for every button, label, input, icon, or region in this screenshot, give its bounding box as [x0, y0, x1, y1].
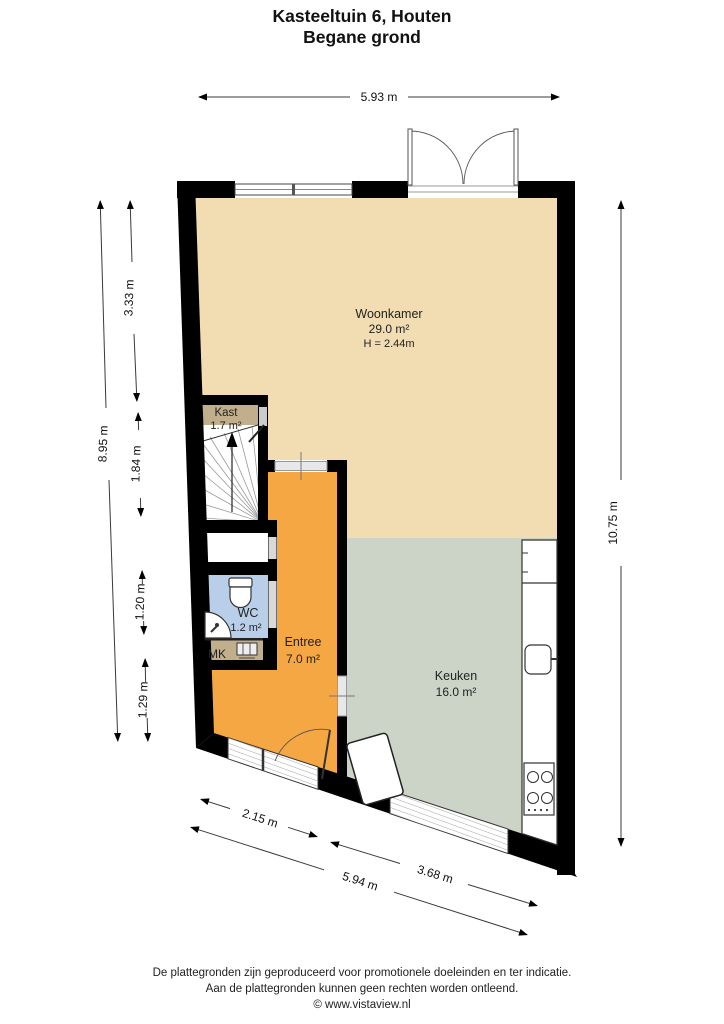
- dim-top: 5.93 m: [361, 90, 398, 104]
- french-door-left-leaf: [408, 129, 412, 185]
- mk-label: MK: [208, 647, 226, 661]
- french-door-right-arc: [464, 131, 517, 184]
- top-window: [235, 184, 352, 195]
- dim-left-seg1: 3.33 m: [121, 279, 136, 316]
- dim-left-seg2: 1.84 m: [128, 445, 143, 482]
- woonkamer-height: H = 2.44m: [363, 338, 414, 350]
- kast-label: Kast: [214, 407, 238, 419]
- toilet-icon: [229, 578, 252, 608]
- entree-area: 7.0 m²: [286, 652, 320, 666]
- niche-door: [269, 537, 277, 559]
- keuken-area: 16.0 m²: [436, 685, 477, 699]
- dim-bottom-total: 5.94 m: [341, 869, 380, 894]
- wc-label: WC: [238, 606, 259, 620]
- woonkamer-label: Woonkamer: [355, 307, 422, 321]
- stove-icon: [524, 763, 554, 815]
- understairs-niche: [203, 533, 268, 562]
- dim-left-seg3: 1.20 m: [132, 583, 147, 620]
- dim-left-total: 8.95 m: [95, 425, 110, 462]
- dim-bottom-entree: 2.15 m: [241, 806, 280, 831]
- page-title: Kasteeltuin 6, Houten: [273, 6, 452, 26]
- footer-disclaimer-2: Aan de plattegronden kunnen geen rechten…: [206, 983, 519, 995]
- dim-left-seg4: 1.29 m: [135, 681, 150, 718]
- wc-door: [269, 581, 277, 628]
- woonkamer-area: 29.0 m²: [369, 322, 410, 336]
- kitchen-counter: [522, 540, 558, 845]
- dim-right: 10.75 m: [606, 501, 620, 544]
- keuken-label: Keuken: [435, 669, 477, 683]
- floorplan-page: Kasteeltuin 6, Houten Begane grond: [0, 0, 724, 1024]
- kitchen-sink-icon: [525, 645, 551, 674]
- french-door-right-leaf: [514, 129, 518, 185]
- wc-area: 1.2 m²: [230, 622, 262, 634]
- french-door-left-arc: [410, 131, 463, 184]
- dim-bottom-keuken: 3.68 m: [416, 862, 455, 886]
- floorplan-canvas: Kasteeltuin 6, Houten Begane grond: [0, 0, 724, 1024]
- footer-disclaimer-1: De plattegronden zijn geproduceerd voor …: [153, 967, 572, 979]
- entree-label: Entree: [285, 635, 322, 649]
- french-doors: [408, 129, 518, 196]
- page-subtitle: Begane grond: [303, 27, 421, 47]
- kast-area: 1.7 m²: [210, 420, 242, 432]
- footer: De plattegronden zijn geproduceerd voor …: [153, 967, 572, 1011]
- footer-copyright: © www.vistaview.nl: [313, 999, 410, 1011]
- kast-door-opening: [259, 407, 267, 426]
